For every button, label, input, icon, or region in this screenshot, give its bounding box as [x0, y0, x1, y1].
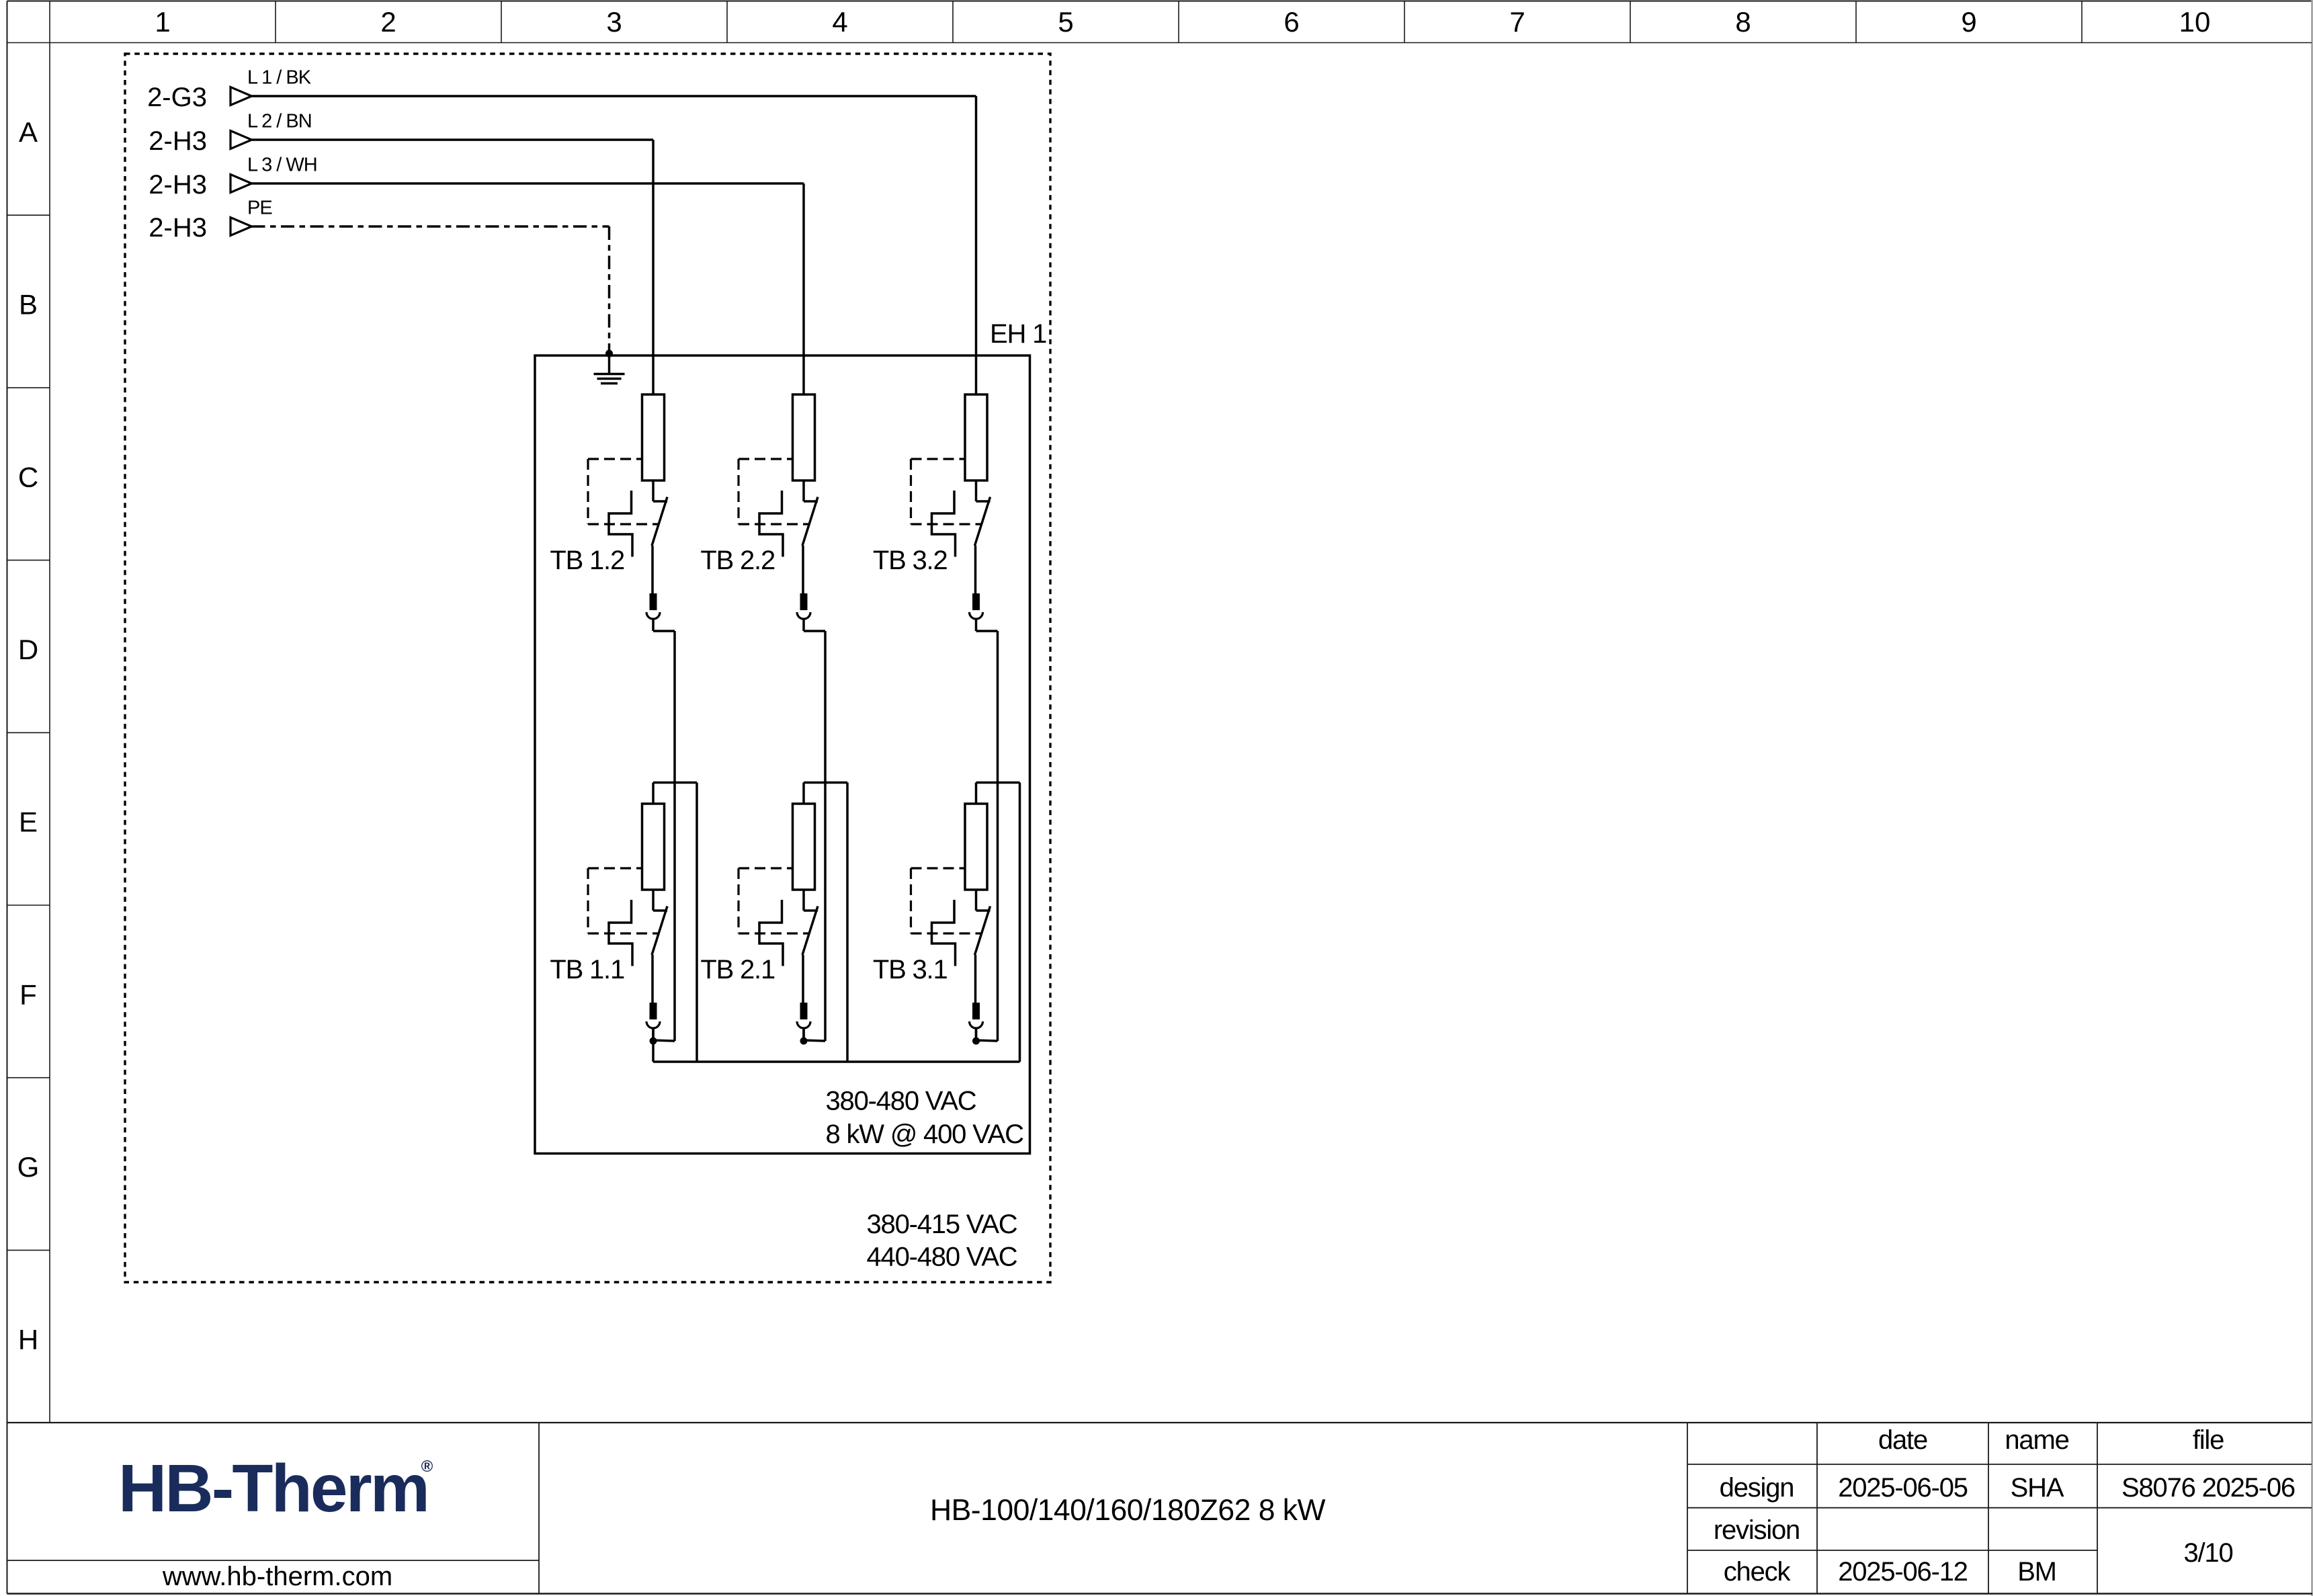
svg-text:2025-06-05: 2025-06-05	[1838, 1473, 1968, 1503]
svg-text:TB 1.2: TB 1.2	[550, 546, 624, 575]
svg-text:3: 3	[606, 6, 622, 38]
svg-text:6: 6	[1284, 6, 1299, 38]
svg-text:www.hb-therm.com: www.hb-therm.com	[162, 1562, 392, 1591]
svg-text:F: F	[19, 978, 37, 1010]
svg-text:file: file	[2193, 1425, 2224, 1455]
svg-text:4: 4	[832, 6, 847, 38]
svg-text:PE: PE	[247, 198, 272, 219]
svg-text:H: H	[18, 1324, 38, 1355]
svg-text:5: 5	[1058, 6, 1073, 38]
svg-text:®: ®	[421, 1458, 433, 1476]
svg-text:L 2 / BN: L 2 / BN	[247, 111, 312, 132]
svg-text:2-H3: 2-H3	[149, 213, 207, 243]
svg-text:E: E	[19, 806, 38, 838]
svg-text:440-480 VAC: 440-480 VAC	[867, 1243, 1017, 1272]
svg-text:B: B	[19, 289, 38, 321]
svg-text:L 3 / WH: L 3 / WH	[247, 155, 317, 176]
svg-text:HB-Therm: HB-Therm	[118, 1451, 428, 1526]
svg-text:check: check	[1724, 1557, 1792, 1587]
svg-text:S8076 2025-06: S8076 2025-06	[2121, 1473, 2295, 1503]
svg-text:9: 9	[1961, 6, 1976, 38]
svg-text:revision: revision	[1714, 1515, 1800, 1545]
svg-text:TB 3.2: TB 3.2	[873, 546, 948, 575]
svg-text:2-G3: 2-G3	[147, 83, 207, 112]
svg-text:3/10: 3/10	[2183, 1538, 2232, 1568]
svg-text:design: design	[1720, 1473, 1794, 1503]
svg-text:SHA: SHA	[2011, 1473, 2064, 1503]
svg-text:2025-06-12: 2025-06-12	[1838, 1557, 1968, 1587]
svg-text:date: date	[1878, 1425, 1927, 1455]
svg-text:L 1 / BK: L 1 / BK	[247, 67, 312, 89]
svg-text:1: 1	[155, 6, 170, 38]
svg-text:C: C	[18, 461, 38, 493]
svg-text:TB 2.2: TB 2.2	[700, 546, 775, 575]
svg-text:10: 10	[2179, 6, 2211, 38]
svg-text:7: 7	[1509, 6, 1525, 38]
svg-text:2-H3: 2-H3	[149, 126, 207, 156]
svg-text:TB 1.1: TB 1.1	[550, 955, 624, 984]
svg-text:8 kW @ 400 VAC: 8 kW @ 400 VAC	[826, 1120, 1024, 1149]
svg-text:A: A	[19, 116, 38, 148]
svg-text:HB-100/140/160/180Z62 8 kW: HB-100/140/160/180Z62 8 kW	[930, 1494, 1326, 1527]
svg-text:D: D	[18, 634, 38, 665]
svg-text:2-H3: 2-H3	[149, 170, 207, 200]
svg-text:EH 1: EH 1	[990, 319, 1046, 349]
svg-text:2: 2	[380, 6, 396, 38]
svg-text:TB 3.1: TB 3.1	[873, 955, 948, 984]
svg-text:380-415 VAC: 380-415 VAC	[867, 1210, 1017, 1239]
svg-text:name: name	[2005, 1425, 2068, 1455]
svg-text:TB 2.1: TB 2.1	[700, 955, 775, 984]
svg-text:G: G	[17, 1151, 40, 1183]
svg-text:BM: BM	[2017, 1557, 2056, 1587]
svg-text:8: 8	[1735, 6, 1751, 38]
svg-text:380-480 VAC: 380-480 VAC	[826, 1087, 976, 1116]
